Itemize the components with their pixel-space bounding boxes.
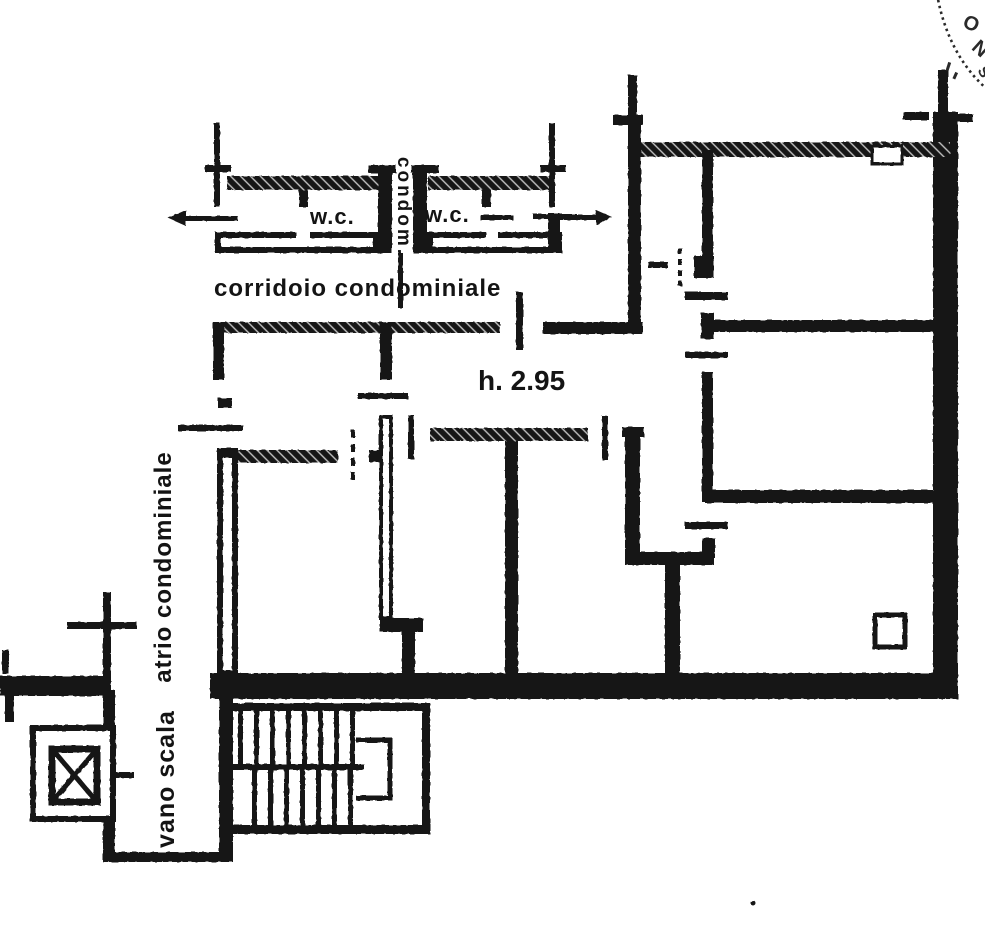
staircase <box>232 708 390 827</box>
wc-entry-arrow-left <box>168 210 238 226</box>
label-shaft: condom. <box>393 157 414 257</box>
stair-treads-upper <box>238 708 355 766</box>
stair-treads-lower <box>252 770 353 827</box>
wc-entry-arrow-right <box>560 210 612 225</box>
duct-column <box>875 615 905 647</box>
ink-speck <box>751 901 756 906</box>
exterior-walls <box>0 70 973 722</box>
label-ceiling-height: h. 2.95 <box>478 365 565 396</box>
label-corridor: corridoio condominiale <box>214 275 501 302</box>
window-notch <box>872 146 902 164</box>
plan-labels: w.c. w.c. condom. corridoio condominiale… <box>150 157 565 848</box>
stamp-letter-o: O <box>959 11 982 37</box>
label-wc-left: w.c. <box>309 204 355 229</box>
label-atrium: atrio condominiale <box>150 451 177 682</box>
stamp-letter-n: N <box>967 36 985 62</box>
label-wc-right: w.c. <box>424 202 470 227</box>
stamp-letter-s: S <box>974 64 985 82</box>
corridor-walls <box>178 292 523 431</box>
elevator <box>33 728 113 819</box>
interior-walls <box>230 75 934 680</box>
floor-plan-page: O N S <box>0 0 985 928</box>
floor-plan-canvas: O N S <box>0 0 985 928</box>
stair-mid-rail <box>232 764 364 770</box>
label-stairwell: vano scala <box>152 710 180 848</box>
